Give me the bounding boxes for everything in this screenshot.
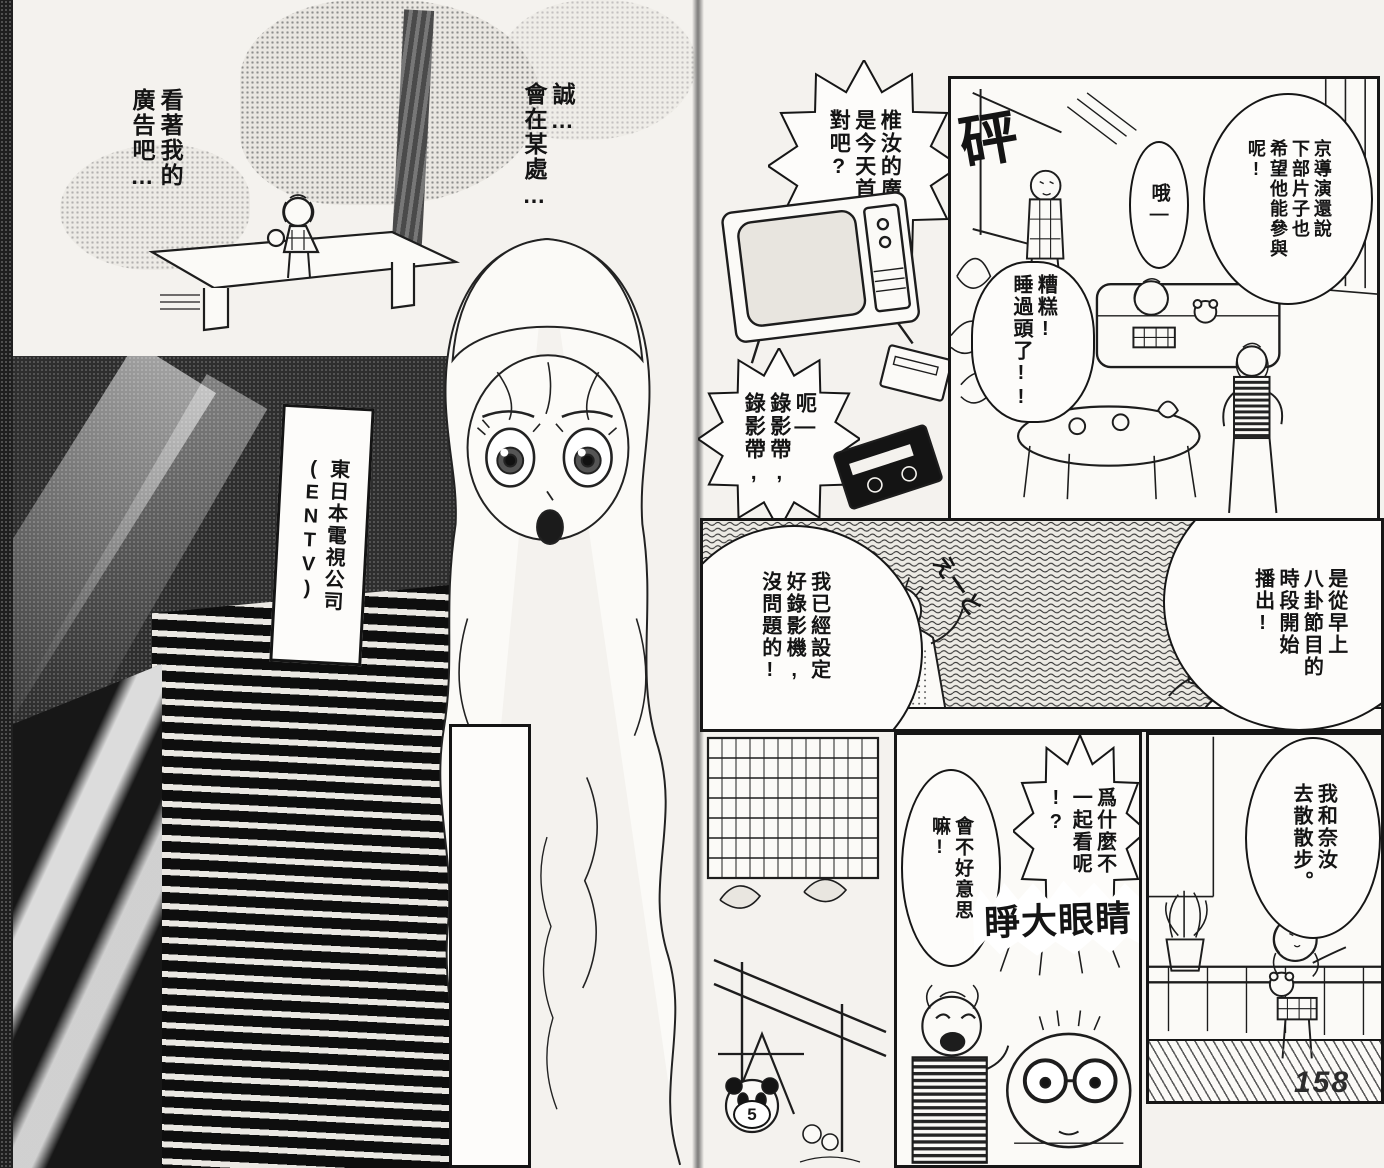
director-bubble: 京導演還說 下部片子也 希望他能參與 呢! bbox=[1203, 93, 1373, 305]
playground-art bbox=[700, 732, 892, 1168]
lowrise-building-art bbox=[12, 664, 162, 1168]
entv-sign: 東日本電視公司 (ENTV) bbox=[269, 404, 374, 666]
vcr-set-text: 我已經設定 好錄影機, 沒問題的! bbox=[757, 571, 830, 683]
manga-spread: 看著我的 廣告吧… 誠… 會在某處… 東日本電視公司 (ENTV) bbox=[0, 0, 1384, 1168]
walk-panel: 我和奈汝 去散散步。 bbox=[1146, 732, 1384, 1104]
playground-scene: 5 bbox=[700, 732, 892, 1168]
watch-panel: 爲什麼不 一起看呢 !? 會不好意思 嘛! 睜大眼睛 bbox=[894, 732, 1142, 1168]
living-room-panel: 砰 京導演還說 下部片子也 希望他能參與 呢! 哦— 糟糕! 睡過頭了!! bbox=[948, 76, 1380, 522]
blank-caption-box bbox=[449, 724, 531, 1168]
vhs-tapes-art bbox=[826, 340, 966, 535]
scan-edge bbox=[0, 0, 13, 1168]
overslept-bubble: 糟糕! 睡過頭了!! bbox=[971, 261, 1095, 423]
left-page: 看著我的 廣告吧… 誠… 會在某處… 東日本電視公司 (ENTV) bbox=[0, 0, 696, 1168]
entv-building-art bbox=[12, 356, 460, 1168]
caption-watch-my-ad: 看著我的 廣告吧… bbox=[128, 88, 184, 328]
why-not-text: 爲什麼不 一起看呢 !? bbox=[1043, 787, 1116, 875]
vcr-panel: 我已經設定 好錄影機, 沒問題的! 是從早上 八卦節目的 時段開始 播出! えー… bbox=[700, 518, 1384, 732]
ride-number-text: 5 bbox=[747, 1105, 756, 1125]
schedule-text: 是從早上 八卦節目的 時段開始 播出! bbox=[1250, 568, 1348, 678]
walk-bubble: 我和奈汝 去散散步。 bbox=[1245, 737, 1381, 939]
overslept-text: 糟糕! 睡過頭了!! bbox=[1009, 274, 1058, 410]
director-text: 京導演還說 下部片子也 希望他能參與 呢! bbox=[1244, 139, 1332, 259]
ride-number-badge: 5 bbox=[733, 1100, 771, 1129]
page-number: 158 bbox=[1294, 1066, 1350, 1100]
oh-text: 哦— bbox=[1147, 183, 1170, 227]
tapes-text: 呃— 錄影帶, 錄影帶, bbox=[741, 392, 818, 486]
girl-face-art bbox=[398, 218, 696, 1168]
walk-text: 我和奈汝 去散散步。 bbox=[1289, 783, 1338, 893]
shy-text: 會不好意思 嘛! bbox=[928, 816, 974, 921]
oh-bubble: 哦— bbox=[1129, 141, 1189, 269]
foliage-art bbox=[240, 0, 540, 205]
